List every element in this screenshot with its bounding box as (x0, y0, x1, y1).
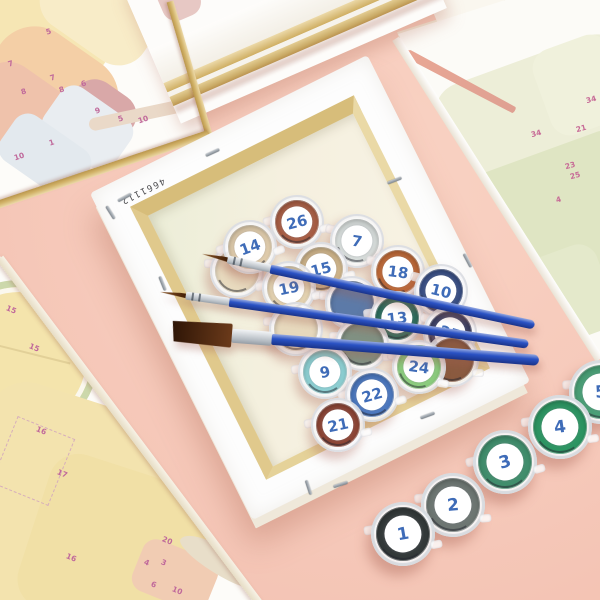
pot-lid-mark (422, 474, 484, 536)
paint-pot-3: 3 (465, 422, 544, 501)
center-canvas-wood-frame (130, 95, 490, 480)
pot-lid (567, 358, 600, 426)
pot-lid-mark (374, 505, 433, 564)
pot-number: 4 (553, 416, 568, 437)
pot-number: 1 (395, 523, 410, 545)
pot-paint-color (530, 397, 591, 458)
pot-number-sticker: 3 (482, 439, 528, 485)
pot-number: 3 (497, 451, 514, 473)
pot-number-sticker: 2 (433, 485, 473, 525)
pot-lid (418, 470, 487, 539)
pot-number: 5 (594, 382, 600, 403)
pot-lid-mark (530, 397, 590, 457)
brush-bristle-tip-icon (160, 290, 186, 299)
staple-icon (333, 481, 348, 488)
pot-lid (465, 422, 544, 501)
pot-lid-mark (478, 435, 532, 489)
paint-pot-1: 1 (366, 497, 440, 571)
paint-pot-5: 5 (567, 358, 600, 426)
brush-ferrule (231, 329, 272, 346)
photo-scene-paint-by-numbers-kit: 5778869510110 15151617162043610 34213423… (0, 0, 600, 600)
pot-lid (366, 497, 440, 571)
pot-lid (524, 391, 596, 463)
pot-paint-color (572, 363, 600, 421)
pot-number-sticker: 5 (581, 372, 600, 412)
brush-flat-bristles-icon (171, 319, 233, 348)
paint-pot-4: 4 (524, 391, 596, 463)
pot-paint-color (372, 503, 435, 566)
pot-paint-color (472, 429, 539, 496)
pot-number: 2 (446, 495, 460, 516)
pot-lid-mark (569, 360, 600, 423)
pot-number-sticker: 1 (382, 513, 425, 556)
pot-paint-color (424, 476, 483, 535)
paint-pot-2: 2 (418, 470, 487, 539)
pot-number-sticker: 4 (539, 406, 581, 448)
